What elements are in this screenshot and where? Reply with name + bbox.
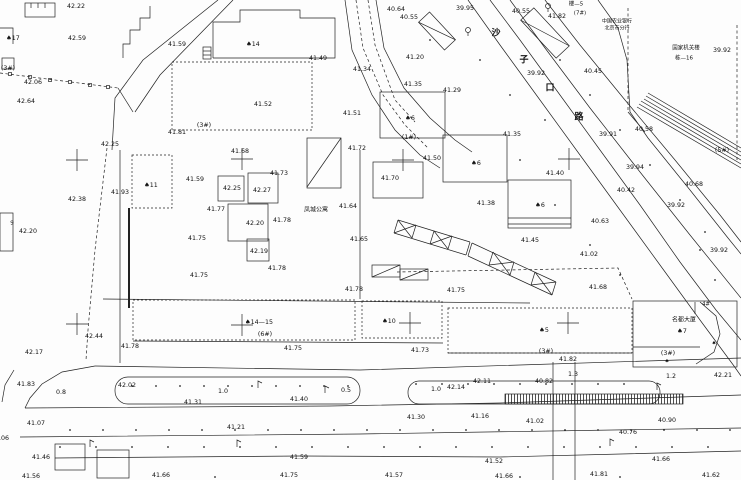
building-outline <box>203 47 211 59</box>
point-dot-icon <box>619 476 621 478</box>
point-dot-icon <box>589 244 591 246</box>
road-edge <box>490 0 741 340</box>
road-edge <box>95 358 741 370</box>
tree-dot-icon <box>311 446 313 448</box>
tree-crown <box>466 28 471 33</box>
elevation-label: 42.06 <box>24 79 42 86</box>
map-line <box>468 243 472 256</box>
elevation-label: 41.02 <box>526 418 544 425</box>
tree-dot-icon <box>347 446 349 448</box>
elevation-label: 42.20 <box>19 228 37 235</box>
survey-cross-marker <box>558 148 580 170</box>
elevation-label: 41.68 <box>589 284 607 291</box>
elevation-label: 39.92 <box>667 202 685 209</box>
utility-pole-icon <box>657 383 661 390</box>
point-dot-icon <box>559 59 561 61</box>
road-edge <box>55 451 741 458</box>
tree-dot-icon <box>623 383 625 385</box>
tree-dot-icon <box>323 385 325 387</box>
tree-dot-icon <box>571 383 573 385</box>
tree-dot-icon <box>275 385 277 387</box>
elevation-label: 楼—5 <box>569 0 584 8</box>
point-dot-icon <box>479 59 481 61</box>
tree-dot-icon <box>599 446 601 448</box>
elevation-label: 40.90 <box>658 417 676 424</box>
tree-dot-icon <box>299 385 301 387</box>
building-diagonal <box>419 12 456 50</box>
elevation-label: (7#) <box>574 11 586 17</box>
map-line <box>648 93 741 148</box>
parcel-dashed-outline <box>172 62 312 130</box>
tree-dot-icon <box>493 383 495 385</box>
tree-dot-icon <box>671 446 673 448</box>
point-dot-icon <box>619 129 621 131</box>
elevation-label: 41.65 <box>350 236 368 243</box>
map-line <box>118 88 133 112</box>
elevation-label: 1.2 <box>666 373 676 380</box>
map-line <box>531 272 535 285</box>
elevation-label: 39.94 <box>626 164 644 171</box>
point-dot-icon <box>429 39 431 41</box>
point-dot-icon <box>554 204 556 206</box>
point-dot-icon <box>519 159 521 161</box>
elevation-label: 41.06 <box>0 435 9 442</box>
road-edge <box>25 366 95 408</box>
building-outline <box>55 444 85 470</box>
elevation-label: 41.20 <box>406 54 424 61</box>
elevation-label: 42.20 <box>246 220 264 227</box>
elevation-label: 40.42 <box>617 187 635 194</box>
elevation-label: 41.75 <box>447 287 465 294</box>
elevation-label: 41.78 <box>345 286 363 293</box>
tree-dot-icon <box>267 429 269 431</box>
tree-dot-icon <box>135 429 137 431</box>
tree-dot-icon <box>59 446 61 448</box>
elevation-label: 41.35 <box>503 131 521 138</box>
elevation-label: ♠ <box>665 359 669 365</box>
elevation-label: 41.16 <box>471 413 489 420</box>
elevation-label: 40.55 <box>400 14 418 21</box>
elevation-label: 41.52 <box>485 458 503 465</box>
point-dot-icon <box>509 94 511 96</box>
tree-dot-icon <box>168 429 170 431</box>
elevation-label: 39.92 <box>527 70 545 77</box>
tree-dot-icon <box>333 429 335 431</box>
road-edge <box>376 0 472 152</box>
elevation-label: (5#) <box>715 147 729 154</box>
elevation-label: ♠6 <box>471 160 481 167</box>
tree-dot-icon <box>696 429 698 431</box>
tree-dot-icon <box>227 385 229 387</box>
elevation-label: 41.62 <box>702 472 720 479</box>
elevation-label: 41.02 <box>580 251 598 258</box>
tree-dot-icon <box>275 446 277 448</box>
road-edge <box>123 6 150 58</box>
tree-dot-icon <box>498 429 500 431</box>
elevation-label: 42.59 <box>68 35 86 42</box>
elevation-label: 42.02 <box>118 382 136 389</box>
tree-dot-icon <box>131 446 133 448</box>
survey-cross-marker <box>392 149 414 171</box>
map-line <box>552 282 556 295</box>
elevation-label: ♠5 <box>539 327 549 334</box>
tree-dot-icon <box>527 446 529 448</box>
elevation-label: 国家机关楼 <box>672 44 700 52</box>
elevation-label: ♠17 <box>6 35 20 42</box>
point-dot-icon <box>699 249 701 251</box>
map-line <box>103 299 530 303</box>
elevation-label: 41.72 <box>348 145 366 152</box>
road-edge <box>598 0 741 254</box>
elevation-label: 41.82 <box>559 356 577 363</box>
tree-dot-icon <box>465 429 467 431</box>
elevation-label: ♠10 <box>382 318 396 325</box>
tree-dot-icon <box>563 446 565 448</box>
elevation-label: 41.59 <box>186 176 204 183</box>
labels-layer: 42.22♠1742.5941.59♠14(3#)42.0642.6442.25… <box>0 0 732 480</box>
tree-dot-icon <box>491 446 493 448</box>
elevation-label: 42.22 <box>67 3 85 10</box>
elevation-label: 42.21 <box>714 372 732 379</box>
elevation-label: 4# <box>702 302 710 308</box>
road-edge <box>2 370 14 402</box>
elevation-label: 41.83 <box>17 381 35 388</box>
elevation-label: ♠7 <box>677 328 687 335</box>
utility-pole-icon <box>610 439 614 446</box>
map-line <box>646 96 741 152</box>
road-edge <box>213 10 335 58</box>
elevation-label: 凤城公寓 <box>304 206 328 214</box>
hatched-wall-strip <box>505 394 683 404</box>
elevation-label: 41.45 <box>521 237 539 244</box>
boundary-post-icon <box>107 86 110 89</box>
point-dot-icon <box>589 94 591 96</box>
elevation-label: 42.64 <box>17 98 35 105</box>
elevation-label: 1.0 <box>431 386 441 393</box>
elevation-label: 41.30 <box>407 414 425 421</box>
elevation-label: 41.78 <box>121 343 139 350</box>
elevation-label: (3#) <box>197 122 211 129</box>
elevation-label: 栋—16 <box>675 54 693 62</box>
map-line <box>468 256 552 295</box>
elevation-label: 41.78 <box>273 217 291 224</box>
elevation-label: 41.50 <box>423 155 441 162</box>
elevation-label: ♠11 <box>144 182 158 189</box>
elevation-label: 42.14 <box>447 384 465 391</box>
elevation-label: ♠ <box>712 341 716 347</box>
map-line <box>307 138 341 187</box>
map-line <box>489 252 493 265</box>
map-line <box>430 231 434 244</box>
elevation-label: 41.49 <box>309 55 327 62</box>
road-edge <box>468 0 741 376</box>
map-line <box>639 104 741 164</box>
elevation-label: 41.77 <box>207 206 225 213</box>
tree-dot-icon <box>251 385 253 387</box>
elevation-label: 41.66 <box>152 472 170 479</box>
map-line <box>400 269 428 280</box>
elevation-label: (3#) <box>539 348 553 355</box>
elevation-label: 42.27 <box>253 187 271 194</box>
road-edge <box>345 0 440 168</box>
tree-dot-icon <box>441 383 443 385</box>
point-dot-icon <box>519 476 521 478</box>
elevation-label: 39.91 <box>599 131 617 138</box>
elevation-label: 41.35 <box>404 81 422 88</box>
elevation-label: 41.75 <box>280 472 298 479</box>
tree-dot-icon <box>597 429 599 431</box>
tree-dot-icon <box>635 446 637 448</box>
tree-dot-icon <box>203 385 205 387</box>
elevation-label: 42.25 <box>223 185 241 192</box>
elevation-label: 名都大厦 <box>672 316 696 324</box>
elevation-label: 42.25 <box>101 141 119 148</box>
elevation-label: 41.52 <box>254 101 272 108</box>
street-name-char: 口 <box>545 83 554 94</box>
elevation-label: 1.3 <box>568 371 578 378</box>
elevation-label: 41.81 <box>590 471 608 478</box>
elevation-label: 40.82 <box>535 378 553 385</box>
utility-pole-icon <box>237 440 241 447</box>
building-outline <box>97 450 129 478</box>
map-line <box>412 225 416 238</box>
elevation-label: 41.31 <box>184 399 202 406</box>
street-name-char: 沙 <box>491 28 500 39</box>
traffic-island-outline <box>115 377 360 404</box>
elevation-label: 0.8 <box>56 389 66 396</box>
tree-dot-icon <box>707 446 709 448</box>
map-line <box>394 220 398 233</box>
boundary-post-icon <box>89 84 92 87</box>
utility-pole-icon <box>90 440 94 447</box>
elevation-label: 41.59 <box>168 41 186 48</box>
elevation-label: 40.68 <box>685 181 703 188</box>
elevation-label: 40.63 <box>591 218 609 225</box>
building-outline <box>0 213 13 251</box>
tree-dot-icon <box>419 446 421 448</box>
elevation-label: 41.38 <box>477 200 495 207</box>
tree-dot-icon <box>203 446 205 448</box>
site-plan-svg: 42.22♠1742.5941.59♠14(3#)42.0642.6442.25… <box>0 0 741 480</box>
map-line <box>430 236 452 244</box>
elevation-label: 42.11 <box>473 378 491 385</box>
elevation-label: (3#) <box>661 350 675 357</box>
survey-cross-marker <box>399 312 421 334</box>
street-name-char: 子 <box>519 55 528 66</box>
buildings-layer <box>0 3 737 478</box>
survey-cross-marker <box>66 149 88 171</box>
point-dot-icon <box>649 164 651 166</box>
elevation-label: 41.81 <box>168 129 186 136</box>
elevation-label: 41.21 <box>227 424 245 431</box>
elevation-label: (1#) <box>402 134 416 141</box>
elevation-label: 41.56 <box>22 473 40 480</box>
rotated-building <box>419 12 456 50</box>
elevation-label: ♠6 <box>405 115 415 122</box>
elevation-label: 41.34 <box>353 66 371 73</box>
point-dot-icon <box>214 476 216 478</box>
road-edge <box>510 0 741 298</box>
survey-cross-marker <box>557 312 579 334</box>
point-dot-icon <box>619 274 621 276</box>
elevation-label: (6#) <box>258 331 272 338</box>
elevation-label: 39.95 <box>456 5 474 12</box>
map-line <box>372 265 400 277</box>
tree-dot-icon <box>467 383 469 385</box>
survey-cross-marker <box>66 313 88 335</box>
point-dot-icon <box>714 279 716 281</box>
tree-dot-icon <box>201 429 203 431</box>
elevation-label: 41.66 <box>652 456 670 463</box>
building-outline <box>443 135 507 182</box>
elevation-label: 1.0 <box>218 388 228 395</box>
map-line <box>489 262 514 265</box>
elevation-label: 41.73 <box>270 170 288 177</box>
map-line <box>394 225 416 233</box>
point-dot-icon <box>704 231 706 233</box>
tree-dot-icon <box>239 446 241 448</box>
elevation-label: 41.59 <box>290 454 308 461</box>
map-line <box>448 236 452 249</box>
tree-dot-icon <box>179 385 181 387</box>
elevation-label: 41.40 <box>290 396 308 403</box>
elevation-label: ♠14 <box>246 41 260 48</box>
elevation-label: 41.75 <box>284 345 302 352</box>
tree-dot-icon <box>383 446 385 448</box>
tree-dot-icon <box>531 429 533 431</box>
elevation-label: 40.58 <box>635 126 653 133</box>
elevation-label: 北京市分行 <box>604 25 629 32</box>
utility-pole-icon <box>325 386 329 393</box>
road-edge <box>86 148 107 360</box>
tree-dot-icon <box>597 383 599 385</box>
road-edge <box>696 302 720 364</box>
tree-dot-icon <box>455 446 457 448</box>
elevation-label: 41.64 <box>339 203 357 210</box>
symbols-layer <box>9 4 731 478</box>
elevation-label: 39.92 <box>710 247 728 254</box>
building-outline <box>25 3 55 17</box>
street-name-char: 路 <box>574 111 584 123</box>
map-line <box>531 282 556 285</box>
tree-dot-icon <box>399 429 401 431</box>
tree-dot-icon <box>95 446 97 448</box>
elevation-label: 41.57 <box>385 472 403 479</box>
elevation-label: 40.64 <box>387 6 405 13</box>
elevation-label: 中国农业银行 <box>602 18 632 25</box>
tree-dot-icon <box>663 429 665 431</box>
elevation-label: 40.45 <box>584 68 602 75</box>
elevation-label: 41.51 <box>343 110 361 117</box>
tree-dot-icon <box>300 429 302 431</box>
elevation-label: ♠6 <box>535 202 545 209</box>
map-line <box>133 341 443 343</box>
elevation-label: 41.73 <box>411 347 429 354</box>
elevation-label: (3#) <box>1 65 15 72</box>
tree-dot-icon <box>366 429 368 431</box>
elevation-label: 40.76 <box>619 429 637 436</box>
parcel-dashed-outline <box>133 300 355 340</box>
elevation-label: 41.75 <box>188 235 206 242</box>
elevation-label: 42.38 <box>68 196 86 203</box>
tree-icon <box>546 4 551 13</box>
elevation-label: 41.75 <box>190 272 208 279</box>
tree-dot-icon <box>102 429 104 431</box>
elevation-label: 9 <box>10 221 14 227</box>
elevation-label: ♠14—15 <box>245 319 273 326</box>
map-line <box>0 73 118 88</box>
elevation-label: 42.17 <box>25 349 43 356</box>
elevation-label: 42.19 <box>250 248 268 255</box>
elevation-label: 41.29 <box>443 87 461 94</box>
elevation-label: 41.40 <box>546 170 564 177</box>
point-dot-icon <box>679 199 681 201</box>
tree-dot-icon <box>432 429 434 431</box>
boundary-post-icon <box>49 79 52 82</box>
elevation-label: 41.78 <box>268 265 286 272</box>
tree-dot-icon <box>729 429 731 431</box>
tree-dot-icon <box>155 385 157 387</box>
elevation-label: 41.68 <box>231 148 249 155</box>
elevation-label: 40.55 <box>512 8 530 15</box>
tree-dot-icon <box>167 446 169 448</box>
elevation-label: 41.07 <box>27 420 45 427</box>
point-dot-icon <box>544 119 546 121</box>
elevation-label: 42.44 <box>85 333 103 340</box>
elevation-label: 39.92 <box>713 47 731 54</box>
map-line <box>637 107 741 168</box>
elevation-label: 41.66 <box>495 473 513 480</box>
elevation-label: 41.93 <box>111 189 129 196</box>
utility-pole-icon <box>258 381 262 388</box>
tree-dot-icon <box>415 383 417 385</box>
tree-dot-icon <box>564 429 566 431</box>
map-line <box>510 262 514 275</box>
elevation-label: 41.70 <box>381 175 399 182</box>
tree-dot-icon <box>69 429 71 431</box>
tree-icon <box>466 28 471 37</box>
elevation-label: 0.5 <box>341 387 351 394</box>
elevation-label: 41.46 <box>32 454 50 461</box>
boundary-post-icon <box>9 73 12 76</box>
tree-dot-icon <box>519 383 521 385</box>
map-line <box>466 242 470 255</box>
cad-viewport: 42.22♠1742.5941.59♠14(3#)42.0642.6442.25… <box>0 0 741 480</box>
parcel-dashed-outline <box>362 301 442 338</box>
elevation-label: 41.82 <box>548 13 566 20</box>
